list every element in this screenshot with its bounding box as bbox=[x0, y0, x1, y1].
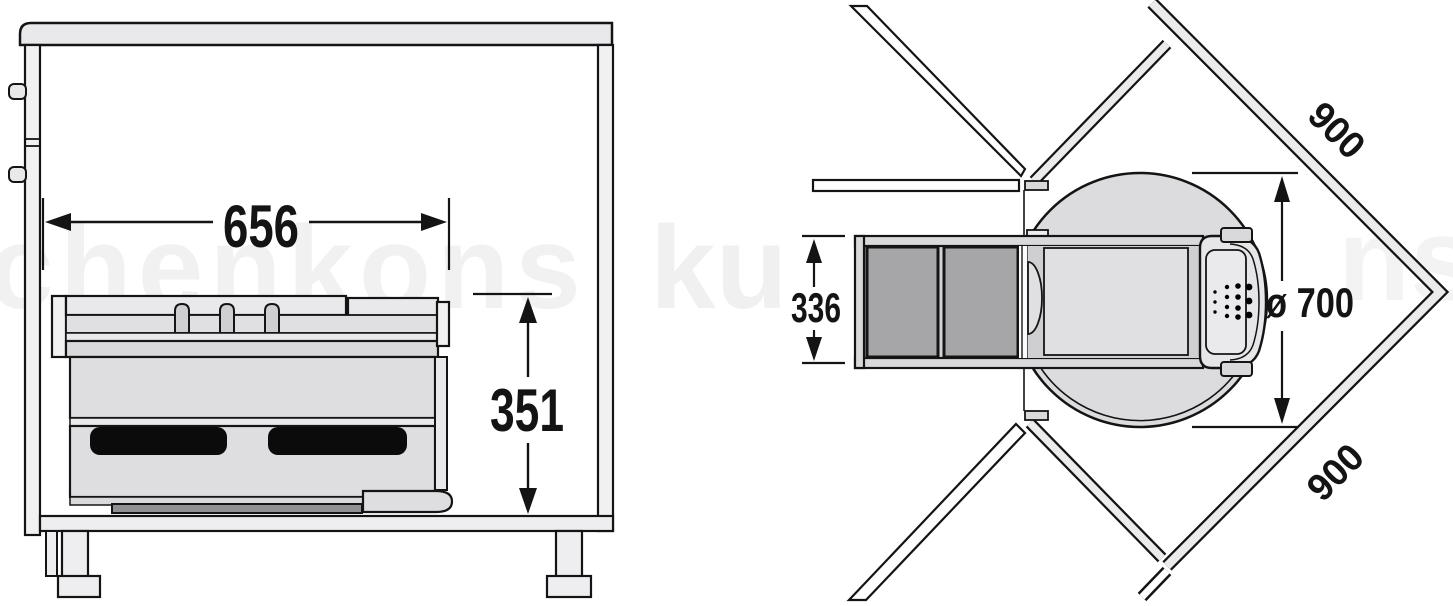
lid-nub bbox=[220, 304, 234, 333]
bin-body-upper bbox=[70, 357, 435, 418]
slide-rail bbox=[112, 504, 362, 513]
corner-door bbox=[1200, 228, 1266, 376]
cabinet-left-door bbox=[25, 45, 40, 535]
lid-nub bbox=[265, 304, 279, 333]
waste-bin-1 bbox=[867, 247, 938, 357]
counter-edge-left bbox=[813, 180, 1019, 191]
dimension-label-900-bottom: 900 bbox=[1299, 436, 1373, 510]
top-view-diagram: 336 ø 700 900 900 bbox=[791, 3, 1440, 600]
lid-bar bbox=[66, 296, 346, 315]
handle-slot-right bbox=[268, 427, 407, 455]
corner-stub-top bbox=[1025, 181, 1048, 190]
tray-inner bbox=[1044, 248, 1188, 355]
wall-bottom-left bbox=[849, 424, 1025, 600]
corner-stub-bottom bbox=[1025, 411, 1048, 420]
counter-run-bottom-inner-fill bbox=[1030, 423, 1162, 558]
right-leg bbox=[556, 531, 582, 578]
watermark-text-mid: ku bbox=[650, 202, 788, 334]
hinge-tab-lower bbox=[9, 167, 26, 182]
door-bracket-bottom bbox=[1221, 362, 1252, 376]
countertop bbox=[20, 23, 612, 45]
wall-top-left bbox=[851, 6, 1025, 176]
dimension-label-diameter: ø 700 bbox=[1266, 279, 1354, 326]
waste-bin-2 bbox=[944, 247, 1018, 357]
right-foot bbox=[547, 576, 591, 597]
mount-bracket-left bbox=[52, 296, 66, 357]
frame-left-cap bbox=[855, 236, 864, 368]
handle-slot-left bbox=[90, 427, 227, 455]
dimension-label-656: 656 bbox=[223, 193, 299, 260]
bin-divider bbox=[70, 418, 435, 426]
left-leg bbox=[62, 531, 88, 578]
arrowhead-up bbox=[1274, 176, 1290, 202]
lid-nub-band bbox=[66, 315, 438, 333]
left-foot bbox=[58, 576, 100, 597]
dimension-label-336: 336 bbox=[791, 284, 841, 331]
pullout-frame bbox=[855, 230, 1203, 368]
cabinet-right-panel bbox=[598, 45, 613, 531]
frame-rail bbox=[66, 341, 438, 357]
counter-run-top-inner-fill bbox=[1034, 44, 1167, 181]
arrowhead-down bbox=[519, 488, 537, 514]
dimension-depth-336: 336 bbox=[791, 236, 845, 363]
cabinet-floor bbox=[40, 516, 613, 531]
frame-top-band bbox=[855, 236, 1203, 246]
mount-bracket-right bbox=[437, 302, 449, 346]
dimension-label-351: 351 bbox=[490, 377, 564, 444]
door-inner-panel bbox=[1206, 250, 1246, 354]
arrowhead-down bbox=[806, 337, 822, 361]
frame-corner-gap bbox=[1019, 246, 1028, 358]
technical-drawing-page: chenkons ku ns bbox=[0, 0, 1453, 606]
lid-nub bbox=[175, 304, 189, 333]
door-bracket-top bbox=[1221, 228, 1252, 242]
slide-runner bbox=[363, 491, 452, 512]
arrowhead-down bbox=[1274, 398, 1290, 424]
arrowhead-up bbox=[806, 239, 822, 263]
lid-thin-band bbox=[66, 333, 438, 341]
plinth-strip bbox=[46, 531, 57, 576]
frame-bottom-band bbox=[855, 358, 1203, 368]
side-column bbox=[435, 357, 447, 490]
waste-bin-unit bbox=[52, 296, 452, 513]
hinge-tab-upper bbox=[9, 84, 26, 99]
drawing-canvas: chenkons ku ns bbox=[0, 0, 1453, 606]
wall-bottom-tail-fill bbox=[1142, 571, 1167, 597]
